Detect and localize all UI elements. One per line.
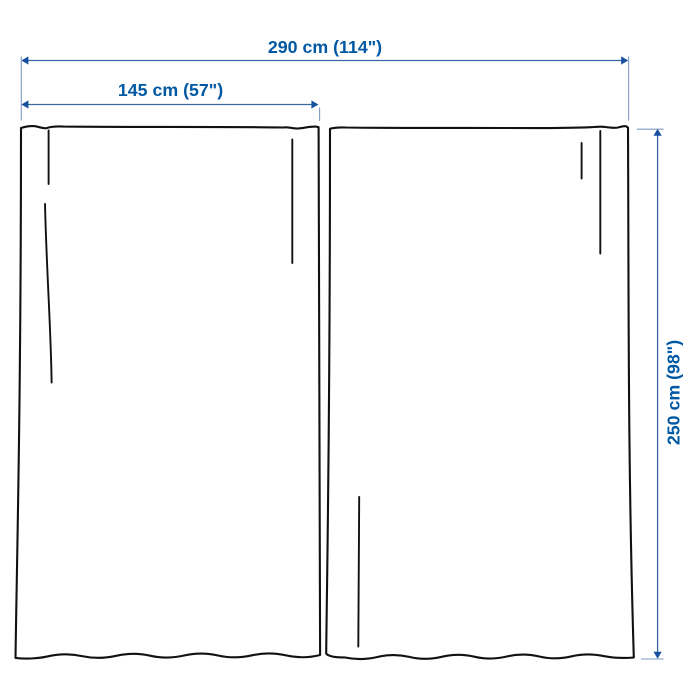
svg-text:250 cm (98"): 250 cm (98") — [664, 340, 684, 445]
svg-text:290 cm (114"): 290 cm (114") — [268, 37, 382, 57]
svg-text:145 cm (57"): 145 cm (57") — [118, 80, 223, 100]
